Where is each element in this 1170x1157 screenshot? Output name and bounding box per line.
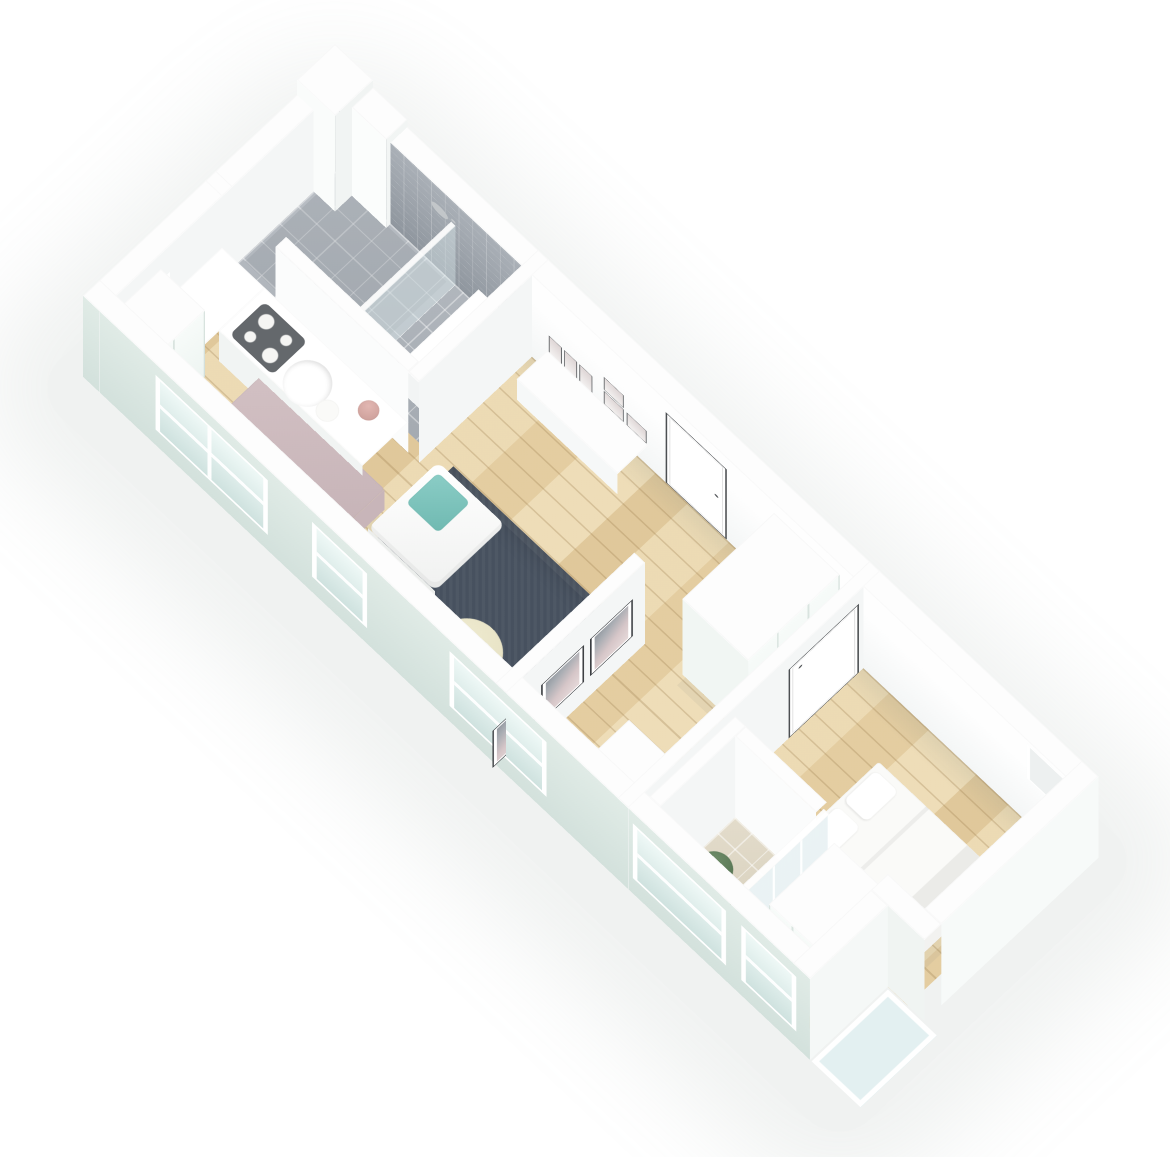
floorplan-canvas: [0, 0, 1170, 1157]
bedroom1-door-handle-icon: [799, 664, 803, 669]
entry-door-handle-icon: [715, 493, 719, 498]
